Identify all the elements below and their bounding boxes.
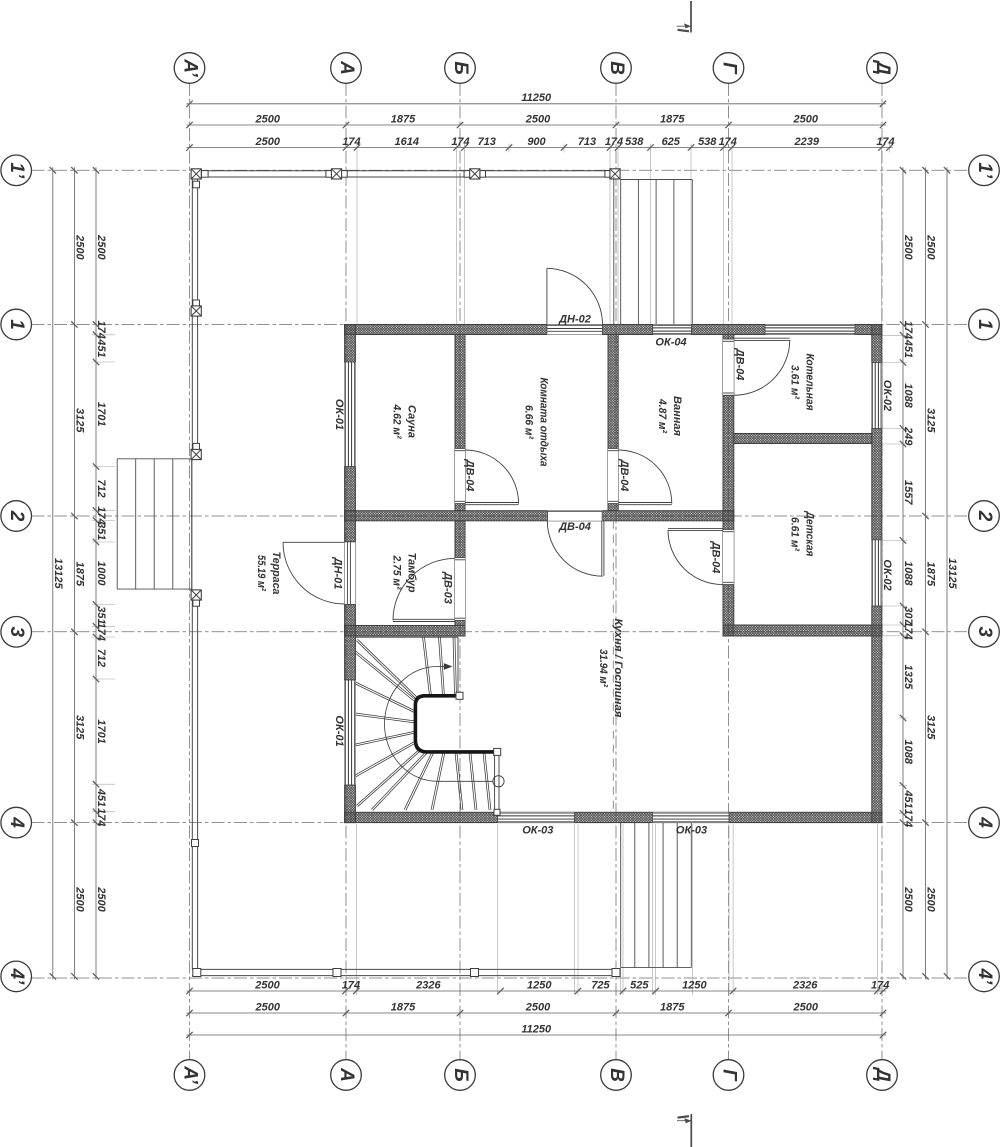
- svg-text:1875: 1875: [660, 113, 685, 125]
- svg-text:1701: 1701: [95, 402, 107, 426]
- svg-text:2500: 2500: [925, 886, 937, 912]
- svg-text:2500: 2500: [255, 113, 281, 125]
- svg-text:1250: 1250: [682, 979, 707, 991]
- svg-text:1614: 1614: [395, 136, 419, 148]
- svg-text:2500: 2500: [902, 234, 914, 260]
- svg-text:ДВ-04: ДВ-04: [463, 459, 475, 492]
- svg-text:2: 2: [974, 510, 995, 522]
- svg-text:174: 174: [95, 622, 107, 640]
- svg-text:ДВ-04: ДВ-04: [558, 521, 591, 533]
- svg-text:6.61 м²: 6.61 м²: [788, 517, 800, 551]
- svg-text:4’: 4’: [974, 967, 995, 985]
- svg-text:174: 174: [876, 136, 894, 148]
- svg-text:1088: 1088: [902, 740, 914, 765]
- svg-text:2500: 2500: [255, 136, 281, 148]
- svg-text:713: 713: [578, 136, 596, 148]
- svg-text:3: 3: [974, 627, 995, 638]
- svg-text:2239: 2239: [794, 136, 820, 148]
- svg-text:13125: 13125: [52, 558, 64, 589]
- svg-text:6.66 м²: 6.66 м²: [522, 405, 534, 439]
- svg-text:2.75 м²: 2.75 м²: [390, 555, 402, 590]
- svg-text:3: 3: [6, 627, 27, 638]
- svg-text:3125: 3125: [74, 408, 86, 433]
- svg-text:1325: 1325: [902, 665, 914, 690]
- svg-text:4.87 м²: 4.87 м²: [656, 398, 668, 433]
- svg-text:1’: 1’: [6, 162, 27, 179]
- svg-text:11250: 11250: [521, 92, 552, 104]
- svg-text:3.61 м²: 3.61 м²: [788, 365, 800, 399]
- svg-text:1875: 1875: [391, 1001, 416, 1013]
- svg-text:11250: 11250: [521, 1023, 552, 1035]
- svg-text:А’: А’: [180, 1065, 201, 1084]
- svg-text:713: 713: [478, 136, 496, 148]
- svg-text:249: 249: [902, 426, 914, 446]
- svg-text:Комната отдыха: Комната отдыха: [538, 378, 550, 467]
- svg-text:1: 1: [6, 319, 27, 330]
- svg-text:2326: 2326: [415, 979, 441, 991]
- svg-text:Б: Б: [450, 61, 471, 74]
- svg-text:ОК-02: ОК-02: [881, 559, 893, 590]
- svg-text:174: 174: [342, 979, 360, 991]
- svg-text:2500: 2500: [255, 1001, 281, 1013]
- svg-text:1701: 1701: [95, 719, 107, 743]
- svg-text:2500: 2500: [925, 234, 937, 260]
- svg-text:Г: Г: [719, 1069, 740, 1082]
- svg-text:712: 712: [95, 479, 107, 497]
- svg-text:174: 174: [95, 808, 107, 826]
- svg-text:1: 1: [974, 319, 995, 330]
- svg-text:ОК-02: ОК-02: [881, 380, 893, 411]
- svg-text:1000: 1000: [95, 561, 107, 586]
- svg-text:31.94 м²: 31.94 м²: [597, 649, 609, 687]
- svg-text:174: 174: [451, 136, 469, 148]
- svg-text:174: 174: [95, 320, 107, 338]
- svg-text:А: А: [336, 1067, 357, 1082]
- svg-text:174: 174: [902, 809, 914, 827]
- svg-text:174: 174: [342, 136, 360, 148]
- svg-text:451: 451: [902, 789, 914, 808]
- svg-text:ДН-01: ДН-01: [332, 557, 344, 590]
- svg-text:2500: 2500: [525, 1001, 551, 1013]
- svg-text:Кухня / Гостиная: Кухня / Гостиная: [612, 619, 624, 719]
- svg-text:174: 174: [902, 621, 914, 639]
- svg-text:451: 451: [95, 338, 107, 357]
- svg-text:Ванная: Ванная: [671, 396, 683, 437]
- svg-text:ДН-02: ДН-02: [558, 314, 591, 326]
- svg-text:525: 525: [630, 979, 649, 991]
- svg-text:174: 174: [871, 979, 889, 991]
- svg-text:174: 174: [605, 136, 623, 148]
- svg-text:2500: 2500: [793, 1001, 819, 1013]
- svg-text:1875: 1875: [74, 562, 86, 587]
- svg-text:712: 712: [95, 649, 107, 667]
- svg-text:2500: 2500: [95, 886, 107, 912]
- svg-text:В: В: [606, 1068, 627, 1082]
- svg-text:ОК-03: ОК-03: [676, 825, 707, 837]
- svg-text:13125: 13125: [946, 558, 958, 589]
- svg-text:625: 625: [662, 136, 681, 148]
- svg-text:ДВ-04: ДВ-04: [733, 348, 745, 381]
- svg-text:2326: 2326: [792, 979, 818, 991]
- svg-text:2500: 2500: [74, 886, 86, 912]
- svg-text:2500: 2500: [95, 234, 107, 260]
- svg-text:ДВ-04: ДВ-04: [710, 541, 722, 574]
- svg-text:А: А: [336, 60, 357, 75]
- svg-text:ОК-03: ОК-03: [522, 825, 553, 837]
- svg-text:2500: 2500: [902, 886, 914, 912]
- svg-text:В: В: [606, 61, 627, 75]
- svg-text:Г: Г: [719, 62, 740, 75]
- svg-text:3125: 3125: [74, 715, 86, 740]
- svg-text:1875: 1875: [391, 113, 416, 125]
- svg-text:3125: 3125: [925, 408, 937, 433]
- svg-text:900: 900: [527, 136, 546, 148]
- svg-text:2500: 2500: [525, 113, 551, 125]
- svg-text:174: 174: [719, 136, 737, 148]
- svg-text:174: 174: [902, 321, 914, 339]
- svg-text:1875: 1875: [660, 1001, 685, 1013]
- svg-text:3125: 3125: [925, 715, 937, 740]
- svg-text:Д: Д: [872, 59, 893, 75]
- svg-text:Детская: Детская: [804, 511, 816, 557]
- svg-text:4’: 4’: [6, 967, 27, 985]
- svg-text:Сауна: Сауна: [406, 405, 418, 438]
- svg-text:1088: 1088: [902, 383, 914, 408]
- svg-text:ОК-01: ОК-01: [333, 715, 345, 746]
- svg-text:1250: 1250: [527, 979, 552, 991]
- svg-text:А’: А’: [180, 58, 201, 77]
- svg-text:2500: 2500: [74, 234, 86, 260]
- svg-text:Д: Д: [872, 1066, 893, 1082]
- svg-text:538: 538: [698, 136, 717, 148]
- svg-text:Тамбур: Тамбур: [406, 553, 418, 593]
- svg-text:725: 725: [591, 979, 610, 991]
- svg-text:4: 4: [974, 816, 995, 828]
- svg-text:ОК-04: ОК-04: [655, 337, 686, 349]
- svg-text:4: 4: [6, 816, 27, 828]
- svg-text:2500: 2500: [793, 113, 819, 125]
- svg-text:Котельная: Котельная: [804, 354, 816, 411]
- svg-text:1875: 1875: [925, 562, 937, 587]
- svg-text:451: 451: [95, 788, 107, 807]
- svg-text:1557: 1557: [902, 480, 914, 505]
- svg-text:Терраса: Терраса: [270, 552, 282, 595]
- svg-text:ОК-01: ОК-01: [333, 399, 345, 430]
- svg-text:1088: 1088: [902, 561, 914, 586]
- svg-text:ДВ-03: ДВ-03: [441, 571, 453, 604]
- svg-text:55.19 м²: 55.19 м²: [255, 555, 267, 591]
- svg-text:2: 2: [6, 510, 27, 522]
- svg-text:451: 451: [902, 339, 914, 358]
- svg-text:4.62 м²: 4.62 м²: [390, 404, 402, 439]
- svg-text:Б: Б: [450, 1068, 471, 1081]
- svg-text:1’: 1’: [974, 162, 995, 179]
- svg-text:351: 351: [95, 522, 107, 540]
- svg-text:ДВ-04: ДВ-04: [618, 459, 630, 492]
- svg-text:538: 538: [625, 136, 644, 148]
- svg-text:2500: 2500: [254, 979, 280, 991]
